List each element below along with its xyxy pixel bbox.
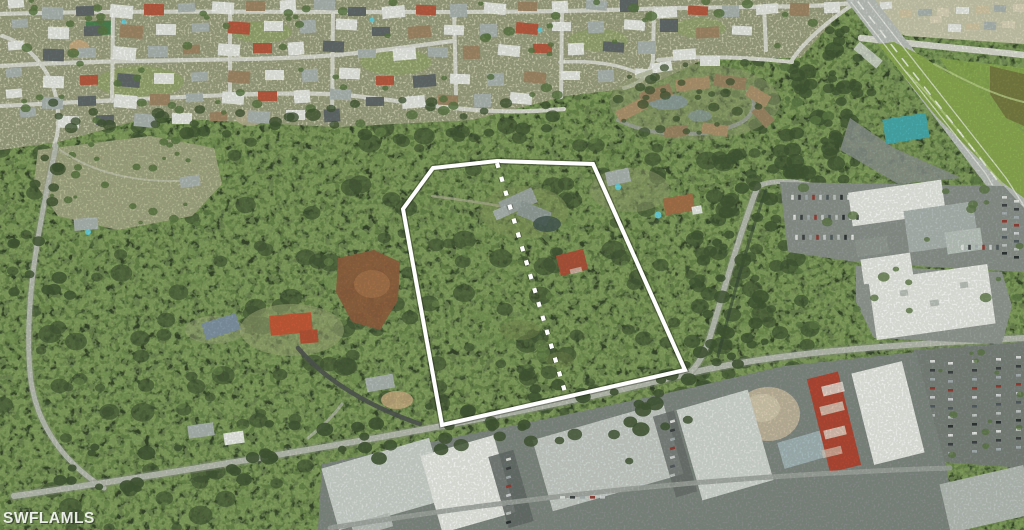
scene-layers (0, 0, 1024, 530)
aerial-photo-viewport: SWFLAMLS SWFLAMLS (0, 0, 1024, 530)
warm-haze (0, 0, 1024, 530)
aerial-photo: SWFLAMLS SWFLAMLS (0, 0, 1024, 530)
watermark-text: SWFLAMLS (3, 510, 95, 527)
watermark: SWFLAMLS SWFLAMLS (3, 510, 96, 528)
